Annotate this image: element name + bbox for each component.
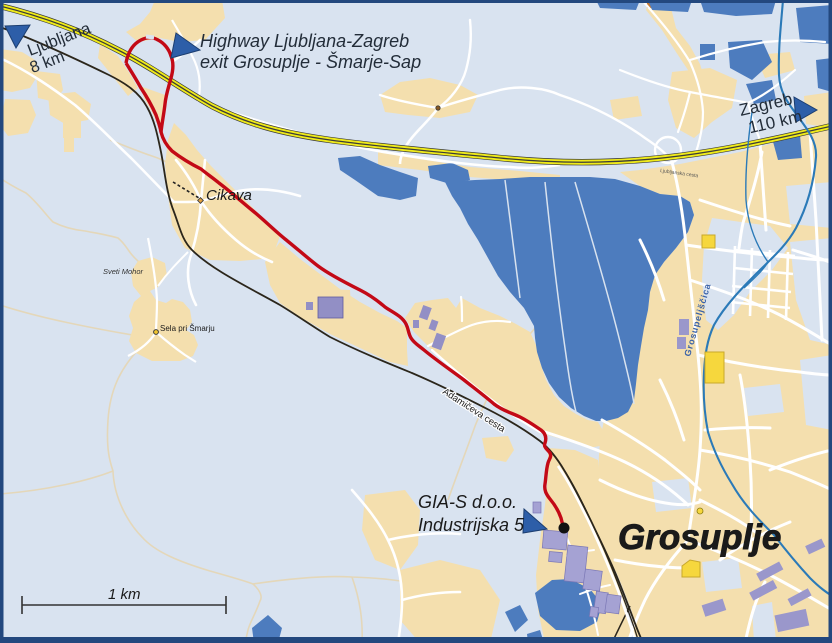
svg-text:Sveti Mohor: Sveti Mohor [103, 267, 144, 276]
svg-text:Sela pri Šmarju: Sela pri Šmarju [160, 324, 215, 333]
svg-text:Grosuplje: Grosuplje [618, 518, 781, 557]
svg-text:1 km: 1 km [108, 586, 141, 603]
svg-text:exit Grosuplje - Šmarje-Sap: exit Grosuplje - Šmarje-Sap [200, 51, 421, 72]
svg-text:Highway Ljubljana-Zagreb: Highway Ljubljana-Zagreb [200, 31, 409, 51]
svg-text:Cikava: Cikava [206, 187, 252, 204]
svg-text:GIA-S d.o.o.: GIA-S d.o.o. [418, 492, 517, 512]
svg-text:Industrijska 5: Industrijska 5 [418, 515, 525, 535]
